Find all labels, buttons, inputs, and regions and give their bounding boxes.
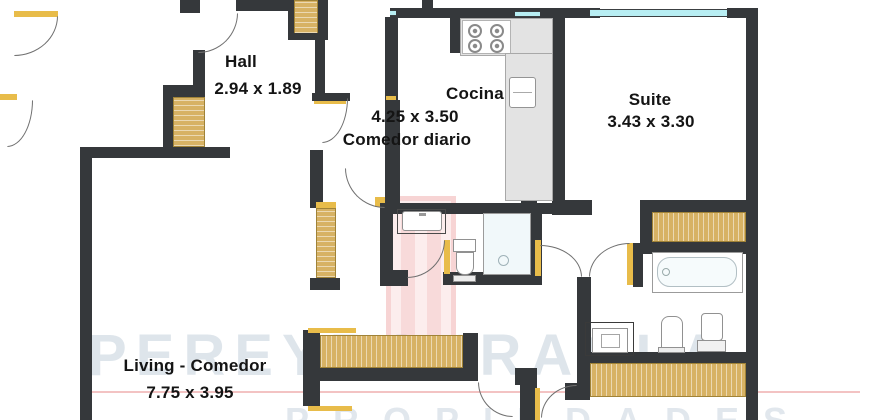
- kitchen-counter-column: [505, 53, 553, 201]
- wall: [310, 278, 340, 290]
- window-suite: [590, 9, 727, 17]
- closet-suite: [652, 212, 746, 242]
- stove-burner: [490, 39, 504, 53]
- wall: [640, 200, 746, 212]
- bidet: [661, 316, 683, 350]
- stove-burner: [468, 39, 482, 53]
- door-arc: [7, 100, 33, 147]
- kitchen-sink-divider: [513, 92, 532, 93]
- wall: [515, 368, 537, 385]
- bathtub-faucet: [662, 268, 670, 276]
- door-arc-suite: [589, 243, 630, 277]
- bathroom-sink-basin: [601, 334, 620, 348]
- wall: [80, 156, 92, 420]
- closet-hall-top: [294, 0, 318, 34]
- wall: [80, 147, 230, 158]
- wall: [318, 368, 478, 381]
- wall: [422, 0, 433, 9]
- wall: [180, 0, 200, 13]
- toilette-sink: [402, 211, 442, 231]
- wall: [385, 17, 398, 100]
- room-label-hall: Hall: [201, 52, 281, 72]
- door-arc-entry: [198, 13, 238, 53]
- bathtub: [652, 252, 743, 293]
- toilet-tank: [453, 239, 476, 252]
- stove-burner: [490, 24, 504, 38]
- stove-burner: [468, 24, 482, 38]
- room-dims-hall: 2.94 x 1.89: [211, 79, 305, 99]
- door-jamb: [308, 328, 356, 333]
- wall: [552, 200, 592, 215]
- toilet-base: [453, 275, 476, 282]
- room-label-suite: Suite: [622, 90, 678, 110]
- bidet-base: [658, 347, 685, 353]
- wall: [633, 243, 643, 287]
- wall: [315, 36, 325, 98]
- floor-plan: PEREYRA IRAOLA PROPIEDADES: [0, 0, 870, 420]
- closet-bathroom: [590, 363, 746, 397]
- bathroom-sink: [592, 328, 628, 353]
- wall: [380, 214, 393, 272]
- wall: [310, 150, 323, 208]
- kitchen-sink: [509, 77, 536, 108]
- wall: [236, 0, 292, 11]
- wall: [463, 333, 478, 381]
- room-label-cocina: Cocina: [441, 84, 509, 104]
- wall: [163, 95, 173, 149]
- wall: [450, 15, 460, 53]
- door-jamb: [535, 388, 540, 420]
- room-dims-living: 7.75 x 3.95: [134, 383, 246, 403]
- room-dims-comedor: 4.25 x 3.50: [367, 107, 463, 127]
- wall: [380, 270, 408, 286]
- room-label-comedor: Comedor diario: [337, 130, 477, 150]
- room-dims-suite: 3.43 x 3.30: [605, 112, 697, 132]
- door-arc-corridor: [540, 245, 582, 277]
- toilet-suite-base: [697, 340, 726, 352]
- room-label-living: Living - Comedor: [114, 356, 276, 376]
- door-arc-bottom-right: [541, 385, 577, 418]
- door-jamb: [308, 406, 352, 411]
- wall: [552, 13, 565, 215]
- window: [390, 10, 396, 16]
- closet-hall-left: [173, 97, 205, 147]
- window: [515, 11, 540, 17]
- door-arc-living: [345, 168, 385, 208]
- shower-drain: [498, 255, 509, 266]
- toilet-suite-bowl: [701, 313, 723, 341]
- door-arc: [14, 16, 58, 56]
- closet-living: [320, 335, 463, 368]
- closet-corridor: [316, 208, 336, 278]
- stove: [462, 20, 511, 54]
- shower: [483, 213, 531, 275]
- door-leaf: [444, 240, 450, 274]
- faucet: [419, 213, 426, 216]
- toilet-bowl: [456, 252, 474, 275]
